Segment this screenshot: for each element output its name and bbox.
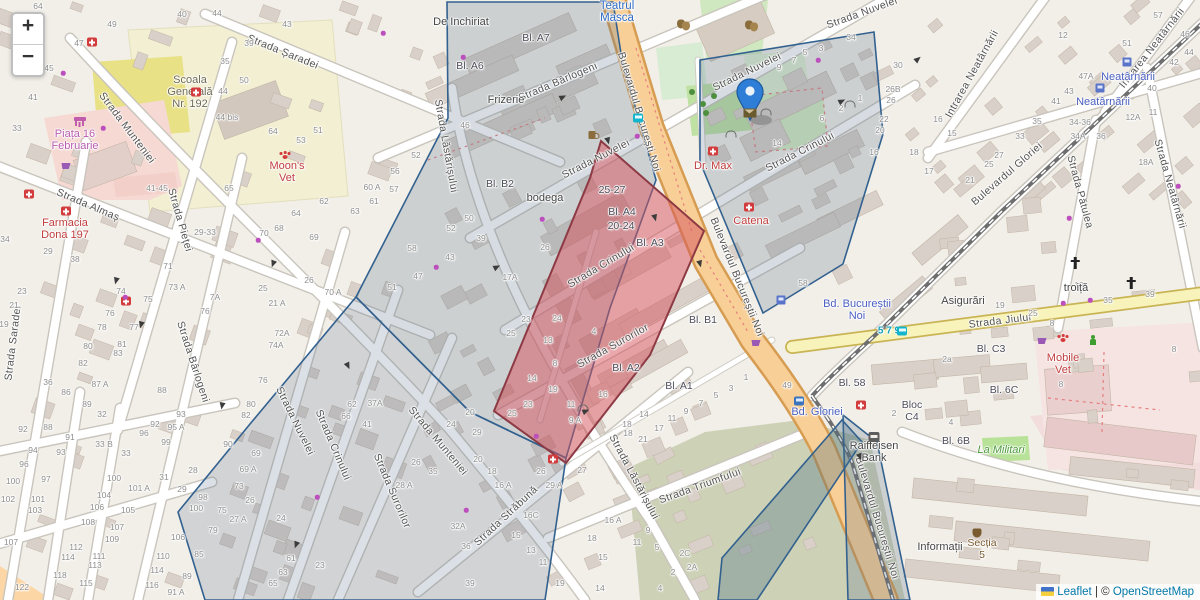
zoom-out-button[interactable]: − [13,45,43,75]
building [925,408,943,420]
zoom-control: + − [11,12,45,77]
leaflet-map[interactable]: Strada MuntenieiStrada AlmașStrada Sarad… [0,0,1200,600]
building [955,277,967,286]
building [1126,469,1139,479]
building [959,547,981,560]
building [1017,560,1040,572]
marker-shadow [750,115,772,125]
building [1022,197,1041,214]
building [1011,285,1036,303]
map-canvas [0,0,1200,600]
building [1033,326,1054,341]
building [963,376,979,393]
attribution-bar: Leaflet | © OpenStreetMap [1036,584,1200,600]
building [1044,365,1111,415]
building [1006,215,1028,233]
building [991,327,1008,338]
copyright-symbol: © [1101,586,1113,598]
building [956,478,974,493]
building [945,400,969,417]
attribution-divider: | [1092,586,1101,598]
building [1041,241,1056,253]
building [913,373,937,390]
marker-pin-dot [745,86,754,95]
zoom-in-button[interactable]: + [13,14,43,45]
building [1077,358,1093,373]
ukraine-flag-icon [1041,587,1054,596]
building [1170,480,1189,491]
leaflet-link[interactable]: Leaflet [1057,586,1092,598]
building [992,537,1010,550]
openstreetmap-link[interactable]: OpenStreetMap [1113,586,1194,598]
building [1087,410,1098,424]
building [1189,370,1200,382]
building [929,515,954,529]
